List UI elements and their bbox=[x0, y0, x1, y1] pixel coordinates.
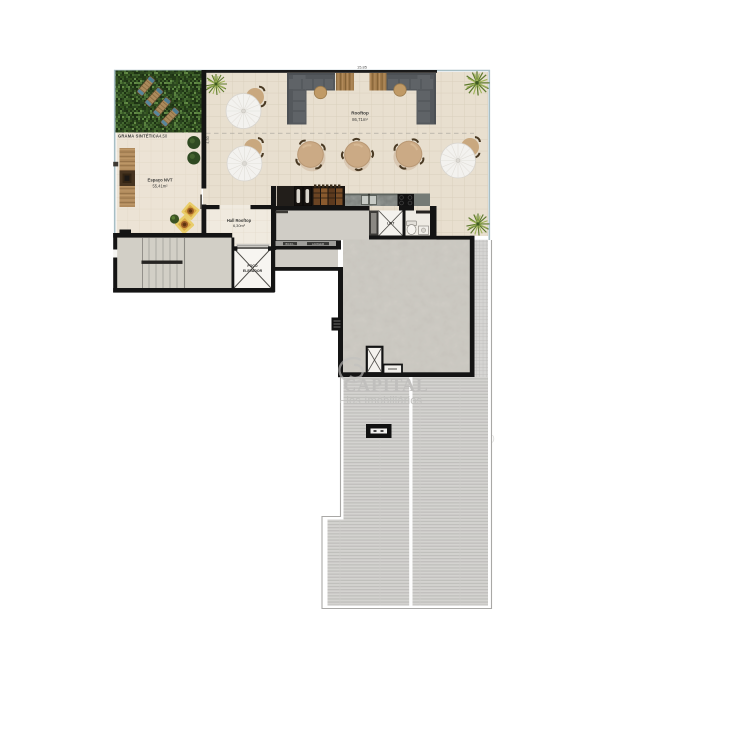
svg-text:⌐ios Imobiliários: ⌐ios Imobiliários bbox=[340, 395, 423, 407]
svg-text:BICICL.: BICICL. bbox=[285, 242, 294, 246]
svg-text:15,85: 15,85 bbox=[357, 65, 368, 70]
svg-text:LIFT: LIFT bbox=[387, 222, 395, 226]
svg-text:Rooftop: Rooftop bbox=[351, 111, 369, 116]
svg-text:6,30m²: 6,30m² bbox=[233, 223, 246, 228]
svg-text:4,50: 4,50 bbox=[206, 136, 210, 143]
svg-text:POÇO: POÇO bbox=[247, 264, 258, 268]
svg-text:CAPITAL: CAPITAL bbox=[343, 375, 428, 395]
svg-text:LAVAGEM: LAVAGEM bbox=[312, 242, 324, 246]
svg-text:GRAMA SINTÉTICA: GRAMA SINTÉTICA bbox=[118, 133, 159, 138]
svg-text:): ) bbox=[492, 434, 495, 443]
svg-text:Espaço NVT: Espaço NVT bbox=[147, 178, 172, 183]
svg-text:86,71m²: 86,71m² bbox=[352, 117, 368, 122]
svg-text:4,50: 4,50 bbox=[159, 134, 168, 139]
svg-text:ELEVADOR: ELEVADOR bbox=[243, 269, 263, 273]
svg-text:Hall Rooftop: Hall Rooftop bbox=[227, 218, 252, 223]
svg-text:55,41m²: 55,41m² bbox=[152, 184, 168, 189]
